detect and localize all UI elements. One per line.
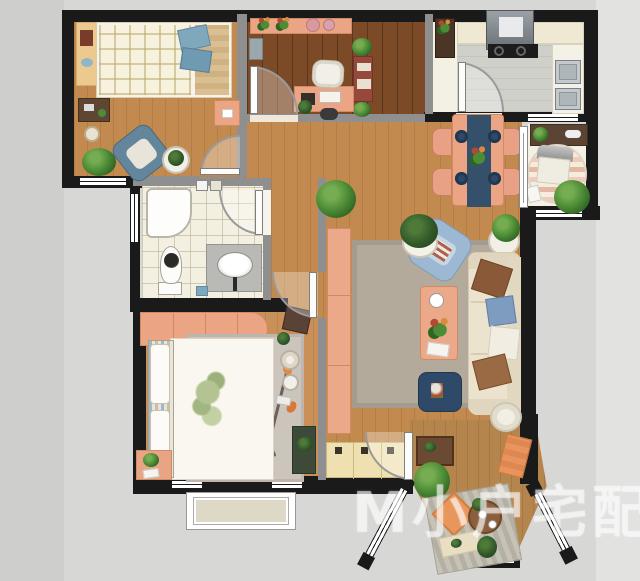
- master-balcony-floor: [194, 498, 288, 524]
- kitchen-burner-2: [516, 46, 526, 56]
- dining-plate-3: [455, 172, 468, 185]
- master-dark-mat: [292, 426, 316, 474]
- window-bath-left: [130, 194, 139, 242]
- study-red-cabinet: [353, 56, 373, 102]
- bath-bin: [196, 286, 208, 296]
- dining-table: [452, 114, 504, 206]
- wall-left-upper: [62, 10, 74, 188]
- shoe-cabinet-knob-1: [335, 447, 342, 454]
- wall-bath-bottom: [130, 298, 288, 312]
- study-chair-base: [320, 108, 338, 120]
- bedroom2-pillow-2: [180, 47, 213, 73]
- bedroom2-desk-dish: [81, 58, 93, 67]
- nook-plant: [554, 180, 590, 214]
- coffee-table-clock: [429, 293, 444, 308]
- watermark-text: 小户宅配: [412, 481, 640, 546]
- coffee-table-plant: [426, 313, 454, 341]
- study-shelf-plate-2: [323, 19, 335, 31]
- study-appliance: [249, 38, 263, 60]
- dining-chair-2: [432, 168, 452, 196]
- living-sideboard: [327, 228, 351, 434]
- living-plant-1: [400, 214, 438, 248]
- bedroom2-door-leaf: [200, 168, 240, 175]
- study-cabinet-slot-1: [357, 63, 371, 71]
- living-side-table-3: [490, 402, 522, 432]
- master-pillow-1: [150, 344, 170, 404]
- floor-plan-canvas: M小户宅配: [0, 0, 640, 581]
- wall-kitchen-right: [584, 10, 598, 122]
- bedroom2-desk-plant: [98, 109, 106, 117]
- sideboard-seam-1: [328, 295, 352, 296]
- bedroom2-writing-desk: [78, 98, 110, 122]
- master-door-leaf: [309, 272, 317, 318]
- closet-plant: [436, 16, 454, 36]
- kitchen-door-leaf: [458, 62, 466, 112]
- bedroom2-laptop: [84, 104, 94, 111]
- kitchen-cooktop: [488, 44, 538, 58]
- study-office-chair: [311, 59, 344, 89]
- bedroom2-desk-item: [80, 30, 93, 46]
- kitchen-hood-vent: [499, 17, 523, 37]
- study-shelf-plate-1: [306, 18, 320, 32]
- wall-study-closet: [425, 14, 433, 114]
- kitchen-sink-1-basin: [559, 64, 577, 80]
- master-nightstand-plant: [143, 453, 159, 467]
- kitchen-sink-1: [555, 60, 581, 84]
- living-coffee-table: [420, 286, 458, 360]
- study-shelf-plant-2: [274, 14, 294, 32]
- kitchen-sink-2-basin: [559, 92, 577, 106]
- bath-sink: [217, 252, 253, 278]
- master-bed-duvet: [170, 338, 274, 480]
- wall-partition-lower: [318, 318, 326, 480]
- study-cabinet-slot-2: [357, 79, 371, 89]
- bedroom2-table-plant: [168, 150, 184, 166]
- wall-living-right: [520, 218, 536, 418]
- dining-centerpiece: [469, 141, 489, 169]
- watermark: M小户宅配: [352, 468, 640, 549]
- bath-toilet: [160, 246, 182, 284]
- master-tea-table-1: [280, 350, 300, 370]
- nook-desk-plant: [533, 127, 548, 142]
- study-plant-top: [352, 38, 372, 56]
- bathroom-door-leaf: [255, 190, 263, 235]
- dining-plate-4: [488, 172, 501, 185]
- bedroom2-bed: [96, 22, 232, 98]
- bedroom2-nightstand: [214, 100, 240, 126]
- sofa-pillow-blue: [485, 295, 517, 327]
- window-bedroom2: [80, 177, 126, 187]
- study-door-leaf: [250, 66, 258, 114]
- living-hall-plant: [316, 180, 356, 218]
- living-sofa: [468, 252, 520, 414]
- kitchen-burner-1: [494, 46, 504, 56]
- nook-slider-seam: [523, 133, 524, 203]
- kitchen-sink-2: [555, 88, 581, 110]
- study-plant-low: [353, 102, 371, 117]
- bedroom2-nightstand-item: [222, 109, 233, 118]
- master-tea-table-2: [282, 374, 299, 391]
- dining-plate-2: [488, 130, 501, 143]
- master-mat-plant: [297, 437, 313, 451]
- bedroom2-stool: [84, 126, 100, 142]
- master-nightstand: [136, 450, 172, 480]
- dining-plate-1: [455, 130, 468, 143]
- pouf-toy: [431, 383, 443, 398]
- exterior-left-shade: [0, 0, 64, 581]
- nook-slider-door: [519, 126, 528, 208]
- nook-desk: [530, 124, 588, 146]
- bath-toilet-lid: [164, 253, 179, 268]
- study-door-threshold: [250, 115, 298, 122]
- living-pouf: [418, 372, 462, 412]
- sideboard-seam-2: [328, 365, 352, 366]
- master-small-plant: [277, 332, 290, 345]
- master-nightstand-paper: [142, 468, 159, 479]
- coffee-table-books: [426, 342, 450, 358]
- bath-faucet: [233, 277, 237, 291]
- window-kitchen-bottom: [528, 113, 578, 122]
- master-balcony-frame: [186, 492, 296, 530]
- watermark-logo: M: [352, 481, 412, 546]
- bath-vanity: [206, 244, 262, 292]
- nook-desk-items: [565, 130, 581, 138]
- bath-door-opening: [263, 190, 271, 235]
- bath-washer-1: [196, 180, 208, 191]
- study-plant-pot: [298, 100, 312, 114]
- bedroom2-plant: [82, 148, 116, 176]
- entry-mat-plant: [424, 442, 436, 452]
- study-keyboard: [319, 91, 341, 103]
- study-shelf-plant-1: [256, 14, 274, 32]
- living-plant-2: [492, 214, 520, 242]
- dining-chair-1: [432, 128, 452, 156]
